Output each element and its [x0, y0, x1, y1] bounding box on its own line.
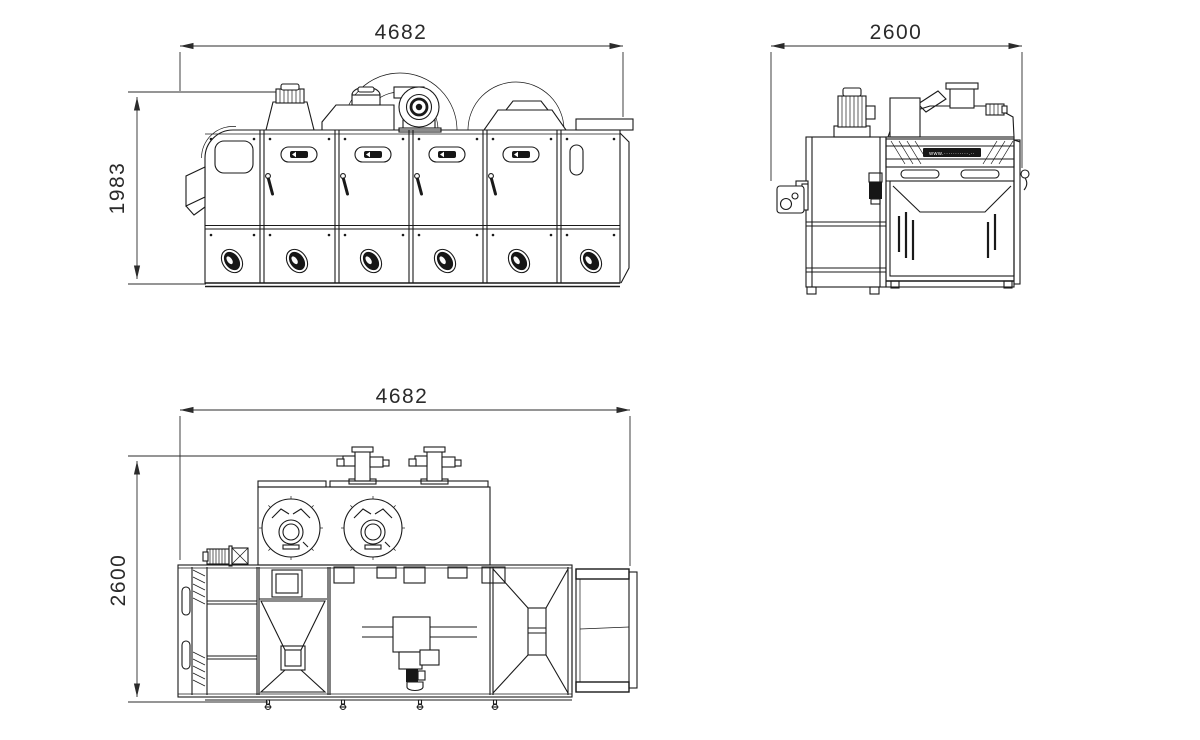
door-knob — [576, 245, 606, 276]
door-handle — [341, 174, 348, 194]
plan-discharge-tray — [572, 569, 637, 692]
front-machine-body — [201, 126, 620, 286]
front-width-dimension-label: 4682 — [375, 21, 428, 44]
brand-badge — [281, 147, 317, 162]
front-elevation-view: 4682 1983 — [106, 21, 633, 287]
plan-upper-housing — [258, 481, 490, 565]
leveling-foot-icon — [492, 700, 499, 710]
side-width-dimension-label: 2600 — [870, 21, 923, 44]
side-slot-band — [886, 167, 1014, 181]
door-knob — [282, 245, 312, 276]
leveling-foot-icon — [340, 700, 347, 710]
side-hood-motor-icon — [986, 104, 1007, 115]
brand-badge — [429, 147, 465, 162]
side-left-cabinet — [806, 137, 886, 294]
plan-top-tabs — [334, 567, 505, 583]
front-inspection-window — [215, 141, 253, 173]
plan-venturi-funnel — [493, 569, 568, 693]
door-handle — [415, 174, 422, 194]
brand-badge — [355, 147, 391, 162]
side-elevation-view: 2600 — [771, 21, 1029, 294]
technical-drawing: 4682 1983 — [0, 0, 1200, 740]
door-handle — [266, 174, 273, 194]
plan-blower-motor-icon — [409, 447, 461, 484]
side-bracket-gearmotor — [777, 181, 808, 213]
leveling-foot-icon — [265, 700, 272, 710]
plan-gearbox-icon — [362, 617, 477, 691]
drawing-sheet: 4682 1983 — [0, 0, 1200, 740]
front-blower-fan-icon — [394, 87, 441, 132]
plan-bottom-rail — [205, 697, 572, 710]
plan-funnel-section — [259, 570, 327, 692]
front-door-handles — [266, 174, 496, 194]
front-motor-icon — [266, 84, 314, 130]
leveling-foot-icon — [417, 700, 424, 710]
top-plan-view: 4682 2600 — [107, 385, 637, 710]
door-handle — [489, 174, 496, 194]
front-left-chute — [186, 167, 205, 215]
door-knob — [504, 245, 534, 276]
plan-main-body — [178, 565, 572, 697]
brand-url-text: www.···········.·· — [928, 151, 975, 157]
front-height-dimension-label: 1983 — [106, 162, 129, 215]
side-hatched-band: www.···········.·· — [886, 139, 1014, 167]
plan-blower-motor-icon — [337, 447, 389, 484]
side-handle-icon — [1021, 170, 1029, 190]
door-knob — [217, 245, 247, 276]
front-oval-slot — [570, 145, 583, 175]
side-lower-panel — [886, 181, 1014, 288]
plan-center-motor-icon — [406, 669, 425, 691]
side-motor-icon — [834, 88, 875, 137]
front-hopper-left — [322, 87, 394, 130]
plan-left-motor-icon — [203, 546, 248, 566]
door-knob — [430, 245, 460, 276]
front-hopper-right — [484, 101, 566, 130]
brand-badge — [503, 147, 539, 162]
door-knob — [356, 245, 386, 276]
plan-depth-dimension-label: 2600 — [107, 554, 130, 607]
front-door-knobs — [217, 245, 606, 276]
plan-width-dimension-label: 4682 — [376, 385, 429, 408]
front-brand-badges — [281, 147, 539, 162]
